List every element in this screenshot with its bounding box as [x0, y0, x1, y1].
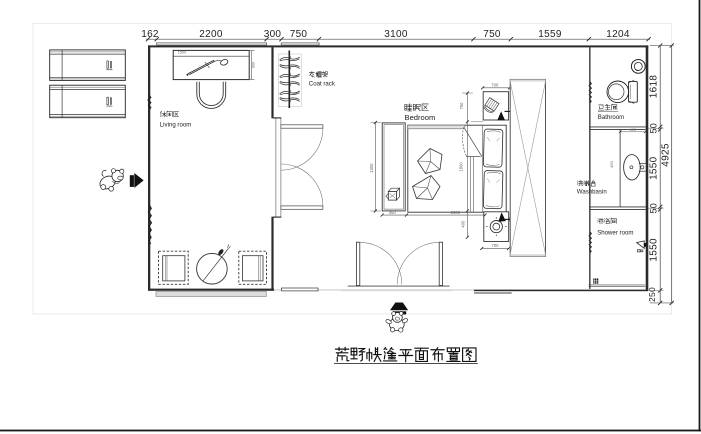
svg-text:750: 750 — [483, 29, 501, 40]
svg-text:750: 750 — [290, 29, 308, 40]
svg-text:400: 400 — [460, 220, 465, 228]
svg-text:Washbasin: Washbasin — [577, 189, 607, 196]
svg-text:700: 700 — [491, 82, 499, 87]
svg-text:Coat rack: Coat rack — [309, 81, 336, 88]
svg-text:600: 600 — [251, 62, 255, 68]
svg-text:2000: 2000 — [451, 210, 461, 215]
svg-text:Shower room: Shower room — [597, 229, 633, 236]
svg-text:1204: 1204 — [606, 29, 630, 40]
svg-text:450: 450 — [609, 160, 614, 167]
svg-text:50: 50 — [649, 123, 659, 134]
svg-text:1500: 1500 — [178, 50, 186, 54]
svg-text:250: 250 — [647, 287, 657, 302]
svg-text:1800: 1800 — [459, 162, 464, 172]
svg-text:450: 450 — [389, 210, 397, 215]
svg-text:300: 300 — [264, 29, 282, 40]
svg-text:1550: 1550 — [649, 238, 660, 262]
svg-text:2200: 2200 — [199, 29, 223, 40]
svg-text:Bathroom: Bathroom — [598, 114, 624, 121]
svg-text:750: 750 — [459, 102, 464, 110]
svg-text:Bedroom: Bedroom — [405, 113, 436, 122]
svg-text:1618: 1618 — [649, 75, 660, 99]
svg-text:4925: 4925 — [660, 143, 671, 167]
svg-text:1559: 1559 — [538, 29, 562, 40]
svg-text:Living room: Living room — [160, 121, 192, 128]
svg-text:1300: 1300 — [369, 163, 374, 173]
svg-text:1550: 1550 — [649, 156, 660, 180]
svg-text:700: 700 — [492, 243, 500, 248]
svg-text:162: 162 — [141, 29, 159, 40]
svg-text:50: 50 — [649, 203, 659, 214]
svg-text:400: 400 — [629, 127, 636, 132]
svg-text:3100: 3100 — [384, 29, 408, 40]
